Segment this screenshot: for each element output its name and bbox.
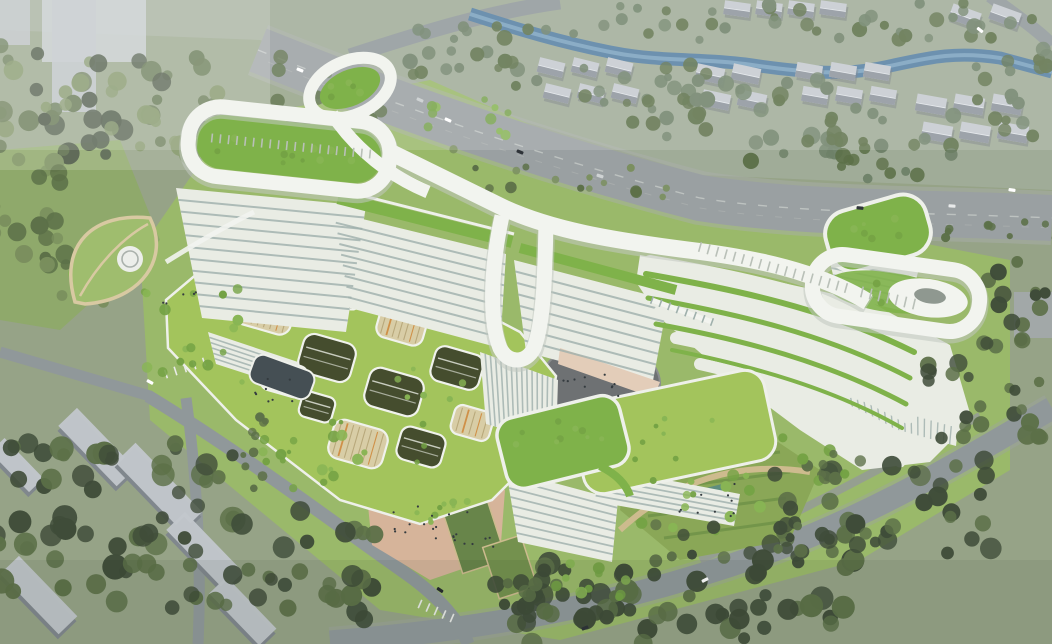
architectural-rendering — [0, 0, 1052, 644]
rendering-canvas — [0, 0, 1052, 644]
bottom-vignette — [0, 560, 1052, 644]
helipad — [117, 246, 143, 272]
